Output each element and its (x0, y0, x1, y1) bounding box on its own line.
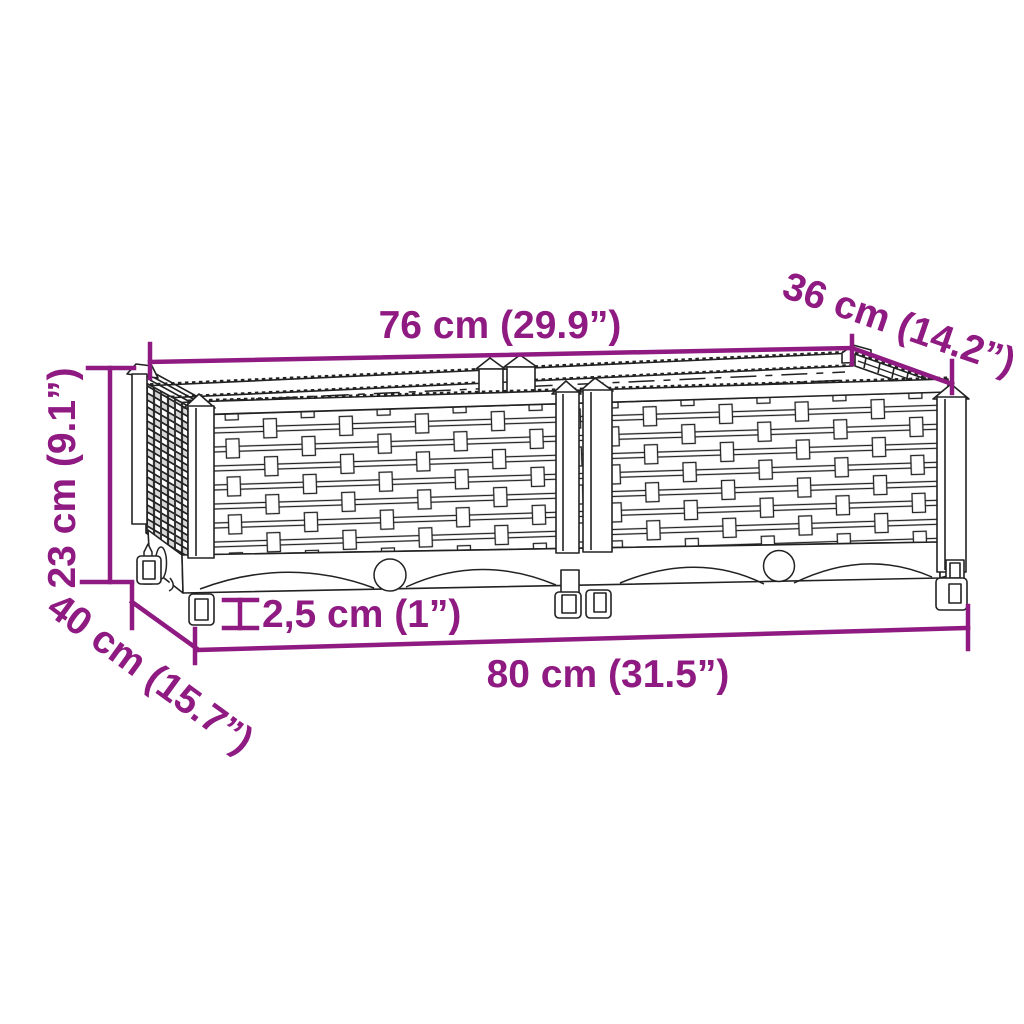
front-right-post (933, 384, 969, 572)
rear-middle-posts (476, 355, 537, 396)
label-height: 23 cm (9.1”) (41, 367, 84, 588)
planter-dimension-drawing: 76 cm (29.9”) 36 cm (14.2”) 23 cm (9.1”)… (0, 0, 1024, 1024)
dim-height (82, 368, 134, 582)
label-leg-height: 2,5 cm (1”) (262, 593, 461, 636)
middle-posts (552, 378, 613, 553)
label-bottom-width: 80 cm (31.5”) (487, 653, 730, 696)
label-bottom-depth: 40 cm (15.7”) (39, 585, 261, 763)
product-dimension-diagram: 76 cm (29.9”) 36 cm (14.2”) 23 cm (9.1”)… (0, 0, 1024, 1024)
label-top-width: 76 cm (29.9”) (379, 304, 622, 347)
dim-leg-height (224, 600, 257, 628)
planter-artwork (127, 345, 969, 625)
front-left-post (184, 394, 215, 558)
